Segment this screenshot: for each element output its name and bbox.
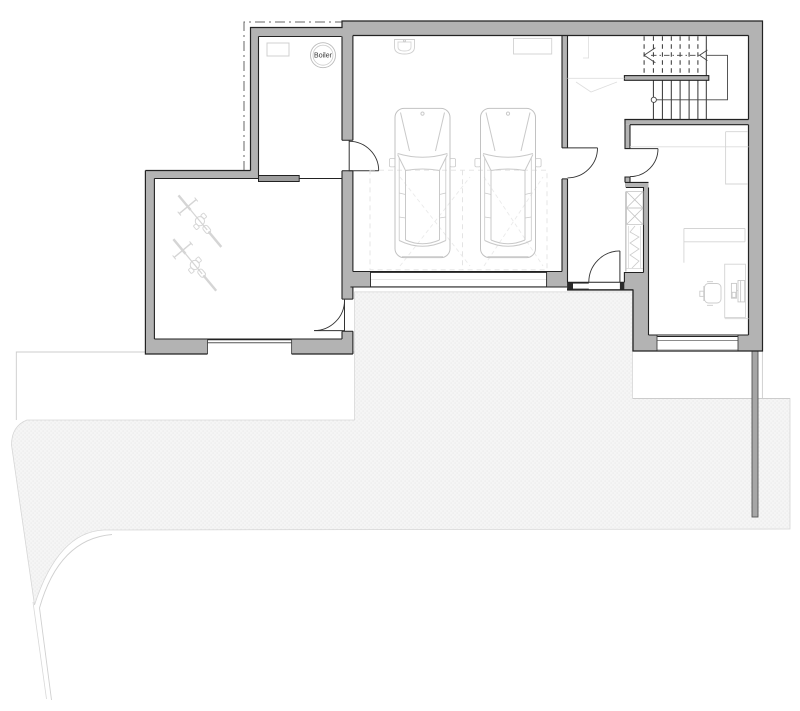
svg-text:Boiler: Boiler [314,53,333,60]
